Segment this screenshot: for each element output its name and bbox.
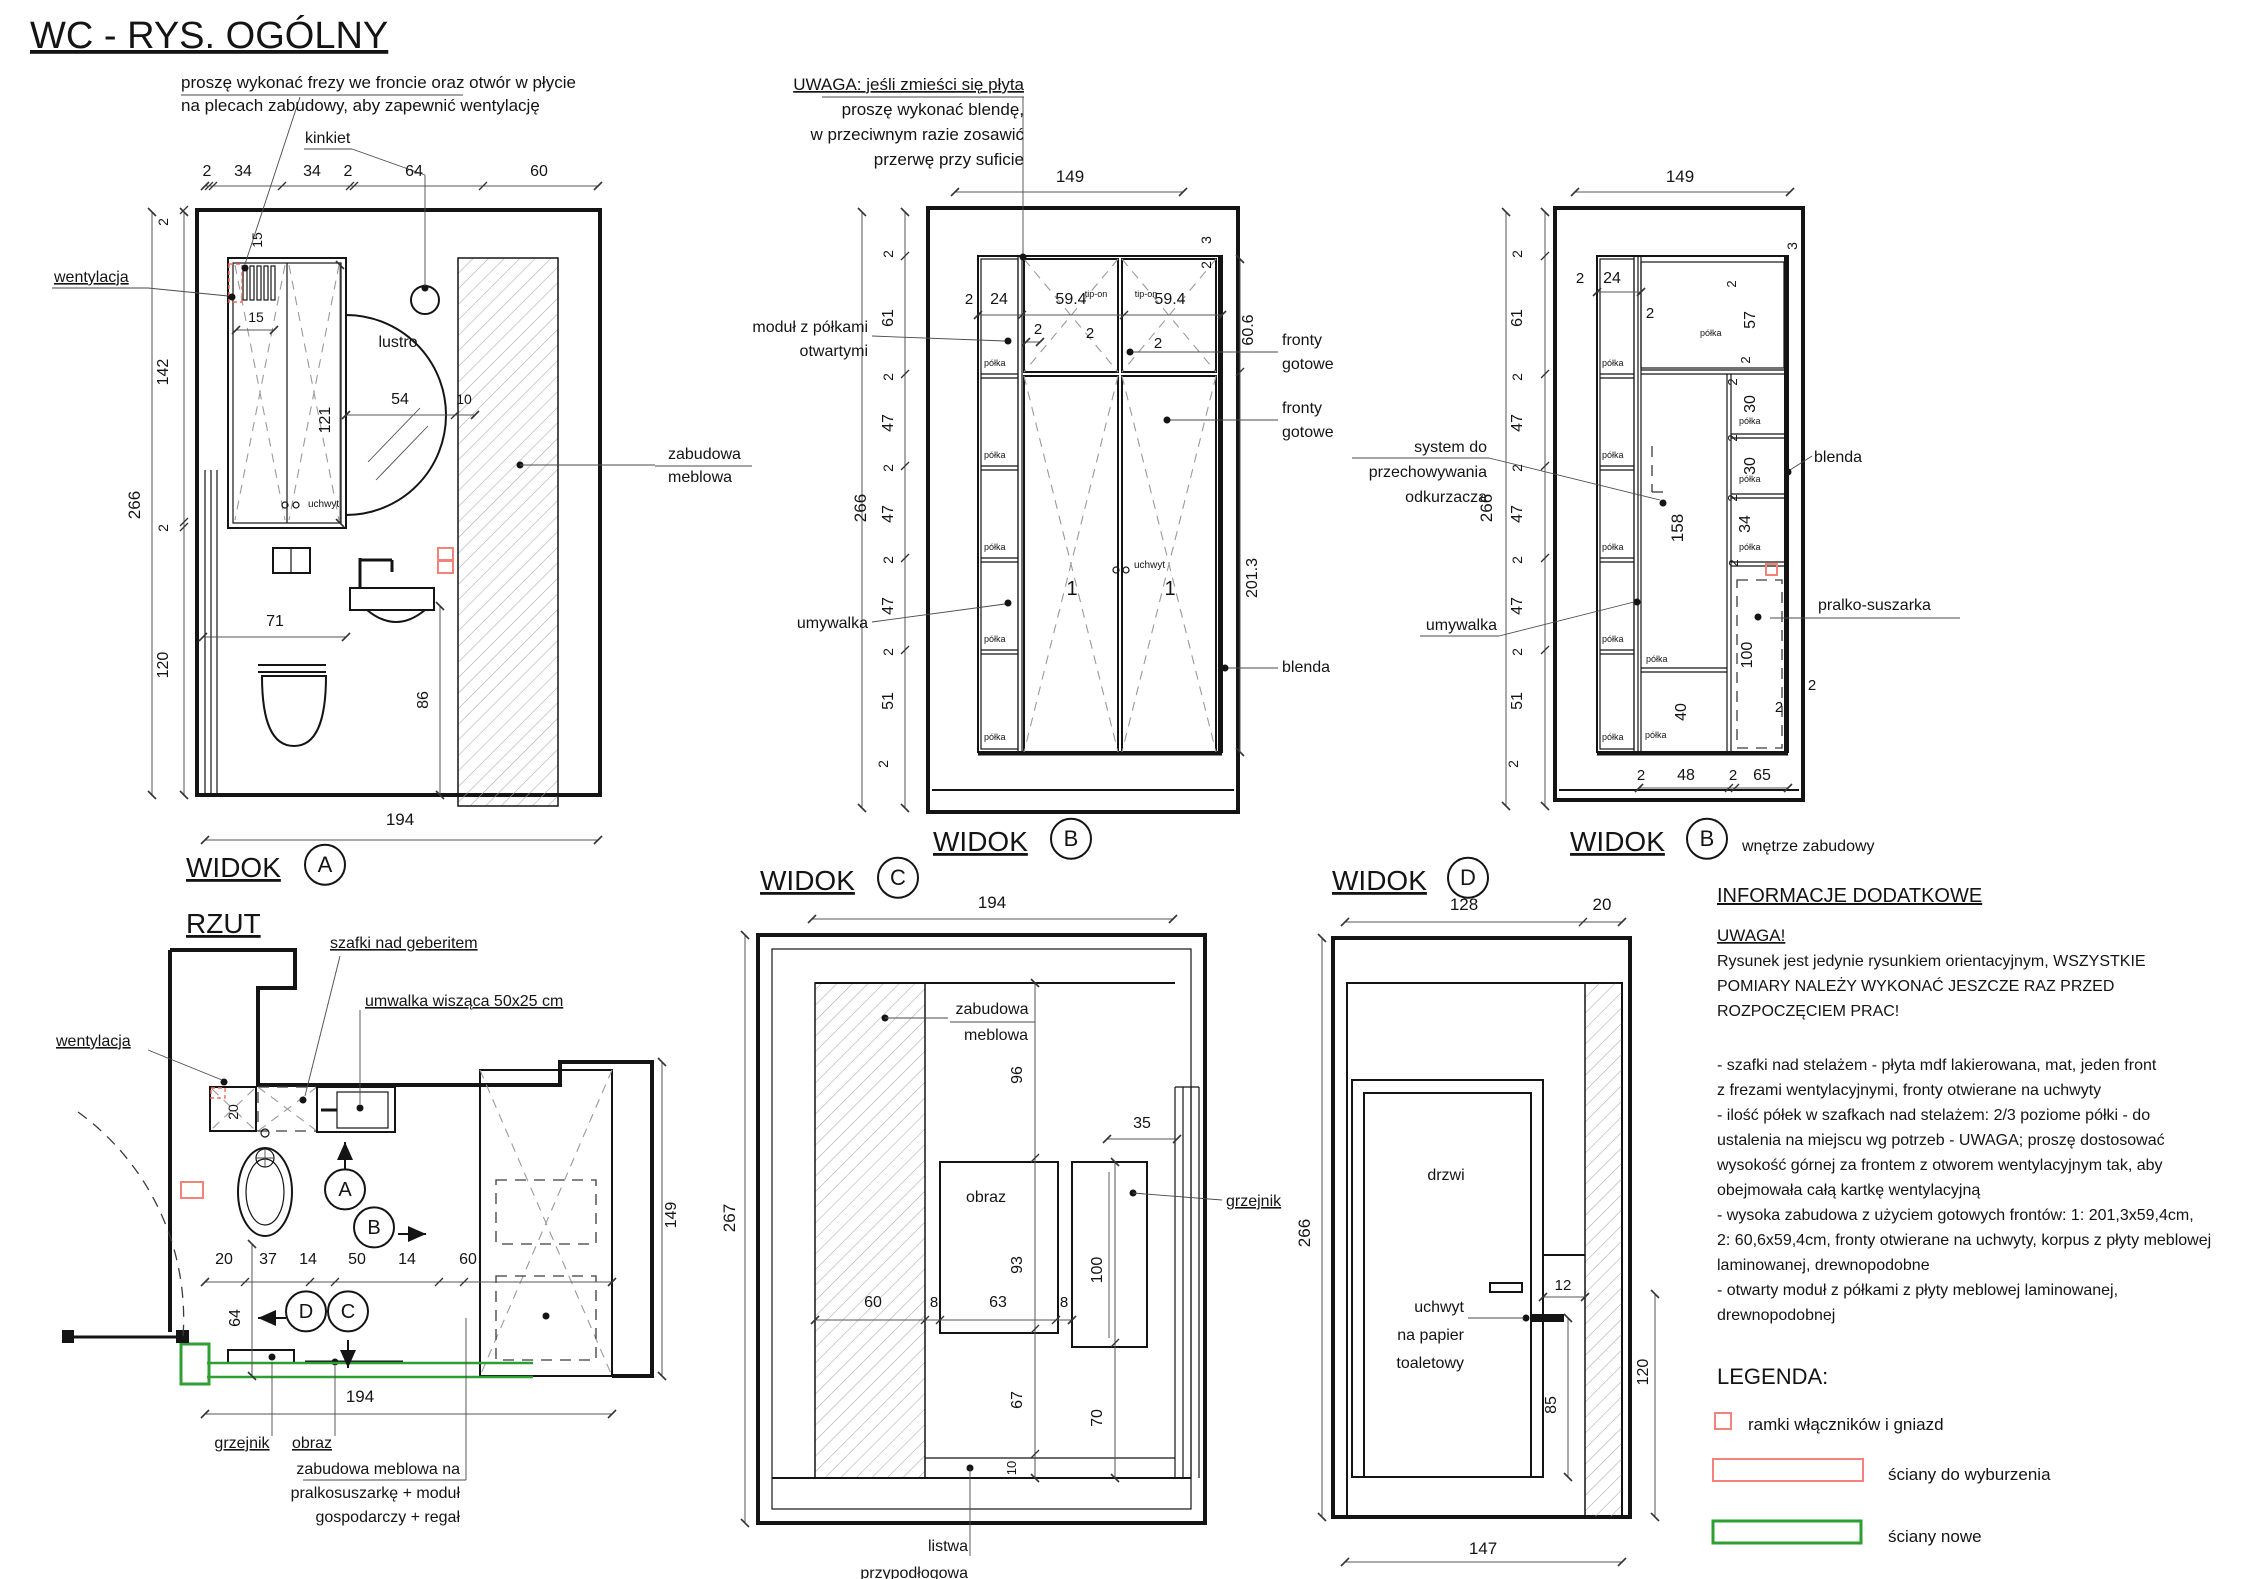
dim-label: 60: [459, 1251, 477, 1268]
dim-label: 2: [1775, 699, 1783, 716]
dim-label: 93: [1009, 1256, 1026, 1274]
label-drzwi: drzwi: [1427, 1167, 1464, 1184]
note-frezy: proszę wykonać frezy we froncie oraz otw…: [181, 73, 576, 92]
dim-label: 65: [1753, 767, 1771, 784]
dim-label: 10: [456, 391, 472, 407]
dim-label: 20: [215, 1251, 233, 1268]
dim-label: 2: [880, 373, 896, 381]
dim-label: 2: [875, 760, 891, 768]
legend-sciany-do-wyburzenia: ściany do wyburzenia: [1888, 1465, 2051, 1484]
label-zabudowa-meblowa: zabudowa: [956, 1001, 1029, 1018]
note-frezy: na plecach zabudowy, aby zapewnić wentyl…: [181, 96, 540, 115]
leaders: [822, 97, 1278, 672]
dim-label: półka: [1602, 542, 1624, 552]
dim-label: 15: [249, 232, 265, 248]
label-obraz: obraz: [292, 1435, 332, 1452]
dim-label: 34: [1737, 515, 1754, 533]
blenda-strip: [1218, 256, 1222, 752]
dim-label: 2: [203, 163, 212, 180]
dim-label: 2: [1576, 270, 1584, 287]
label-system-odkurzacza: system do: [1414, 439, 1487, 456]
dim-label: 194: [346, 1387, 374, 1406]
dim-label: laminowanej, drewnopodobne: [1717, 1257, 1930, 1274]
dim-label: półka: [1645, 730, 1667, 740]
label-kinkiet: kinkiet: [305, 130, 351, 147]
widok-a-marker: A: [318, 852, 333, 877]
geberit-plate: [273, 548, 310, 573]
dim-label: 2: [155, 524, 171, 532]
dim-label: 2: [1086, 325, 1094, 342]
dim-label: 96: [1009, 1066, 1026, 1084]
dim-label: 48: [1677, 767, 1695, 784]
dim-label: 2: [1729, 767, 1737, 784]
dim-label: 24: [1603, 270, 1621, 287]
drawing-sheet: WC - RYS. OGÓLNY: [0, 0, 2247, 1579]
door-handle: [1490, 1283, 1522, 1292]
dim-label: półka: [984, 634, 1006, 644]
dim-label: tip-on: [1135, 289, 1158, 299]
dim-label: półka: [984, 358, 1006, 368]
dim-label: 149: [1666, 167, 1694, 186]
dim-label: drewnopodobnej: [1717, 1307, 1835, 1324]
dim-label: półka: [1602, 450, 1624, 460]
dim-label: 37: [259, 1251, 277, 1268]
label-blenda: blenda: [1814, 449, 1862, 466]
label-pralko-suszarka: pralko-suszarka: [1818, 597, 1931, 614]
label-zabudowa-pralko: gospodarczy + regał: [315, 1509, 460, 1526]
tall-cabinet: [978, 256, 1222, 754]
dim-label: ustalenia na miejscu wg potrzeb - UWAGA;…: [1717, 1132, 2165, 1149]
dimensions: [862, 192, 1244, 808]
dim-label: 2: [880, 250, 896, 258]
dim-label: 2: [1725, 494, 1740, 501]
dim-label: 2: [1509, 556, 1525, 564]
radiator-plan: [228, 1350, 294, 1363]
dim-label: 59.4: [1055, 291, 1086, 308]
dim-label: tip-on: [1085, 289, 1108, 299]
legend-swatch-ramki: [1715, 1413, 1731, 1429]
label-modul-z-polkami: otwartymi: [800, 343, 868, 360]
widok-b2-subtitle: wnętrze zabudowy: [1741, 838, 1875, 855]
dimensions: [205, 1062, 662, 1414]
label-system-odkurzacza: przechowywania: [1369, 464, 1487, 481]
dim-label: 266: [125, 491, 144, 519]
dim-label: 57: [1742, 311, 1759, 329]
dim-label: 47: [1509, 414, 1526, 432]
dim-label: 60: [864, 1294, 882, 1311]
dim-label: 2: [1637, 767, 1645, 784]
label-listwa: listwa: [928, 1538, 968, 1555]
dim-label: ROZPOCZĘCIEM PRAC!: [1717, 1003, 1899, 1020]
open-shelves-left: [1600, 374, 1634, 654]
radiator-pipes-strip: [1175, 1087, 1199, 1478]
dim-label: 3: [1784, 242, 1800, 250]
dim-label: 20: [1593, 895, 1612, 914]
labels-widok_a: proszę wykonać frezy we froncie oraz otw…: [53, 73, 741, 939]
label-modul-z-polkami: moduł z półkami: [752, 319, 868, 336]
label-wentylacja: wentylacja: [53, 269, 129, 286]
dim-label: półka: [984, 542, 1006, 552]
legend-swatch-sciany-nowe: [1713, 1521, 1861, 1543]
widok-b-marker: B: [1064, 826, 1079, 851]
label-blenda: blenda: [1282, 659, 1330, 676]
dim-label: 1: [1164, 578, 1175, 600]
view-widok-a: [52, 95, 752, 840]
dim-label: półka: [1739, 416, 1761, 426]
dim-label: 194: [978, 893, 1006, 912]
toilet-elevation: [258, 665, 326, 746]
note-blenda: proszę wykonać blendę,: [842, 100, 1024, 119]
label-zabudowa-meblowa: zabudowa: [668, 446, 741, 463]
dim-label: półka: [1602, 358, 1624, 368]
label-obraz: obraz: [966, 1189, 1006, 1206]
widok-a-heading: WIDOK: [186, 852, 281, 883]
sink-plan: [317, 1087, 395, 1132]
dim-label: 24: [990, 291, 1008, 308]
dim-label: 2: [1724, 280, 1739, 287]
dim-label: półka: [1700, 328, 1722, 338]
dim-label: 8: [930, 1294, 938, 1311]
dim-label: 2: [1509, 373, 1525, 381]
dim-label: 201.3: [1244, 558, 1261, 598]
dim-label: 2: [155, 218, 171, 226]
dim-label: 158: [1668, 514, 1687, 542]
dim-label: półka: [1602, 732, 1624, 742]
leaders: [148, 956, 466, 1480]
dim-label: 63: [989, 1294, 1007, 1311]
widok-b2-marker: B: [1700, 826, 1715, 851]
dim-label: półka: [1646, 654, 1668, 664]
dim-label: 2: [1034, 321, 1042, 338]
sink-elevation: [350, 558, 434, 622]
dim-label: 47: [1509, 597, 1526, 615]
dim-label: 10: [1004, 1461, 1019, 1475]
dim-label: 121: [317, 407, 334, 434]
dim-label: 14: [299, 1251, 317, 1268]
dim-label: 61: [880, 309, 897, 327]
label-zabudowa-meblowa: meblowa: [668, 469, 732, 486]
zabudowa-plan: [480, 1070, 612, 1376]
dim-label: 120: [155, 652, 172, 679]
label-grzejnik: grzejnik: [214, 1435, 270, 1452]
dim-label: 54: [391, 391, 409, 408]
cabinet-interior: [1597, 256, 1788, 754]
dim-label: - szafki nad stelażem - płyta mdf lakier…: [1717, 1057, 2157, 1074]
marker-b: B: [367, 1217, 380, 1239]
dim-label: 40: [1673, 703, 1690, 721]
label-uchwyt-na-papier: uchwyt: [1414, 1299, 1464, 1316]
labels-widok_b: UWAGA: jeśli zmieści się płytaproszę wyk…: [752, 75, 1333, 859]
widok-d-heading: WIDOK: [1332, 865, 1427, 896]
note-blenda: w przeciwnym razie zosawić: [810, 125, 1025, 144]
rzut-heading: RZUT: [186, 908, 261, 939]
dim-label: 2: [1509, 648, 1525, 656]
dim-label: 71: [266, 613, 284, 630]
dim-label: półka: [984, 450, 1006, 460]
dim-label: 51: [1509, 692, 1526, 710]
dim-label: 147: [1469, 1539, 1497, 1558]
dim-label: półka: [1739, 542, 1761, 552]
label-umywalka-wiszaca: umwalka wisząca 50x25 cm: [365, 993, 563, 1010]
dim-label: 2: [1725, 378, 1740, 385]
radiator-grzejnik: [1072, 1162, 1147, 1347]
dim-label: 266: [1295, 1219, 1314, 1247]
dim-label: 2: [1509, 250, 1525, 258]
dim-label: 2: [1808, 677, 1816, 694]
dim-label: 70: [1089, 1409, 1106, 1427]
dim-label: Rysunek jest jedynie rysunkiem orientacy…: [1717, 953, 2146, 970]
dim-label: 14: [398, 1251, 416, 1268]
label-fronty-gotowe: fronty: [1282, 400, 1322, 417]
dim-label: 120: [1635, 1359, 1652, 1386]
dim-label: - ilość półek w szafkach nad stelażem: 2…: [1717, 1107, 2150, 1124]
dim-label: 2: [965, 291, 973, 308]
dim-label: 64: [227, 1309, 244, 1327]
dim-label: 3: [1198, 236, 1214, 244]
dim-label: obejmowała całą kartkę wentylacyjną: [1717, 1182, 1980, 1199]
dim-label: półka: [1602, 634, 1624, 644]
toilet-plan: [238, 1129, 292, 1236]
socket-frames-red: [438, 548, 453, 573]
dim-label: 64: [405, 163, 423, 180]
dim-label: wysokość górnej za frontem z otworem wen…: [1716, 1157, 2163, 1174]
blenda-strip: [1784, 256, 1788, 752]
cabinet-over-geberit: [228, 258, 346, 528]
dim-label: 34: [303, 163, 321, 180]
widok-c-heading: WIDOK: [760, 865, 855, 896]
door-drzwi: [1352, 1080, 1585, 1477]
dim-label: 2: [1646, 305, 1654, 322]
dim-label: z frezami wentylacyjnymi, fronty otwiera…: [1717, 1082, 2101, 1099]
label-umywalka: umywalka: [1426, 617, 1497, 634]
dim-label: 60.6: [1240, 314, 1257, 345]
dim-label: 47: [1509, 505, 1526, 523]
legend-swatch-sciany-wyburzenia: [1713, 1459, 1863, 1481]
wall-to-demolish-red: [181, 1182, 203, 1198]
dim-label: - wysoka zabudowa z użyciem gotowych fro…: [1717, 1207, 2194, 1224]
dim-label: 8: [1060, 1294, 1068, 1311]
dim-label: półka: [1739, 474, 1761, 484]
zabudowa-meblowa-hatch: [458, 258, 558, 806]
dim-label: uchwyt: [1134, 560, 1165, 571]
widok-c-marker: C: [890, 865, 906, 890]
dim-label: - otwarty moduł z półkami z płyty meblow…: [1717, 1282, 2118, 1299]
page-title: WC - RYS. OGÓLNY: [30, 14, 388, 57]
dim-label: 20: [225, 1104, 241, 1120]
label-fronty-gotowe: gotowe: [1282, 356, 1334, 373]
leaders: [52, 95, 752, 469]
dim-label: 100: [1089, 1257, 1106, 1284]
dim-label: 2: [1509, 464, 1525, 472]
dim-label: 30: [1742, 395, 1759, 413]
dimensions: [1506, 192, 1790, 806]
info-heading: INFORMACJE DODATKOWE: [1717, 885, 1982, 907]
label-uchwyt-na-papier: toaletowy: [1396, 1355, 1464, 1372]
dim-label: 15: [248, 309, 264, 325]
dim-label: 59.4: [1154, 291, 1185, 308]
label-umywalka: umywalka: [797, 615, 868, 632]
note-blenda: UWAGA: jeśli zmieści się płyta: [793, 75, 1024, 94]
dim-label: 2: [1725, 434, 1740, 441]
wall-hatch: [1585, 983, 1622, 1517]
dim-label: 2: [880, 556, 896, 564]
dim-label: 60: [530, 163, 548, 180]
dim-label: 30: [1742, 457, 1759, 475]
dim-label: 2: 60,6x59,4cm, fronty otwierane na uchw…: [1717, 1232, 2211, 1249]
marker-a: A: [338, 1179, 352, 1201]
label-grzejnik: grzejnik: [1226, 1193, 1282, 1210]
dim-label: 34: [234, 163, 252, 180]
dim-label: 2: [1726, 559, 1741, 566]
dim-label: 149: [663, 1202, 680, 1229]
dim-label: 61: [1509, 309, 1526, 327]
wall-layer-lines: [205, 470, 217, 795]
dim-label: 149: [1056, 167, 1084, 186]
dim-label: 51: [880, 692, 897, 710]
labels-rzut: szafki nad geberitemumwalka wisząca 50x2…: [55, 935, 680, 1526]
dim-label: 47: [880, 414, 897, 432]
label-fronty-gotowe: fronty: [1282, 332, 1322, 349]
label-zabudowa-pralko: pralkosuszarkę + moduł: [291, 1485, 461, 1502]
dim-label: 35: [1133, 1115, 1151, 1132]
view-widok-d: [1322, 918, 1655, 1562]
toilet-paper-holder: [1468, 1314, 1564, 1322]
label-zabudowa-meblowa: meblowa: [964, 1027, 1028, 1044]
leaders: [882, 1015, 1223, 1557]
info-uwaga: UWAGA!: [1717, 926, 1785, 945]
label-system-odkurzacza: odkurzacza: [1405, 489, 1487, 506]
legend-ramki-wlacznikow: ramki włączników i gniazd: [1748, 1415, 1944, 1434]
label-uchwyt-na-papier: na papier: [1397, 1327, 1464, 1344]
label-wentylacja: wentylacja: [55, 1033, 131, 1050]
dim-label: 2: [880, 648, 896, 656]
wc-technical-drawing: WC - RYS. OGÓLNY: [0, 0, 2247, 1579]
widok-b-heading: WIDOK: [933, 826, 1028, 857]
label-fronty-gotowe: gotowe: [1282, 424, 1334, 441]
labels-widok_c: 194267zabudowameblowa9635obraz93100grzej…: [720, 858, 1282, 1579]
dim-label: 266: [851, 494, 870, 522]
zabudowa-meblowa-hatch: [815, 983, 925, 1478]
label-lustro: lustro: [378, 334, 417, 351]
note-blenda: przerwę przy suficie: [874, 150, 1024, 169]
labels-info: INFORMACJE DODATKOWEUWAGA!Rysunek jest j…: [1716, 885, 2211, 1389]
dim-label: 47: [880, 505, 897, 523]
dim-label: 2: [344, 163, 353, 180]
label-zabudowa-pralko: zabudowa meblowa na: [296, 1461, 460, 1478]
dim-label: 267: [720, 1204, 739, 1232]
open-shelves: [981, 374, 1018, 654]
marker-d: D: [299, 1301, 313, 1323]
dim-label: 67: [1009, 1391, 1026, 1409]
dim-label: 2: [1505, 760, 1521, 768]
dim-label: 100: [1739, 642, 1756, 669]
dim-label: 50: [348, 1251, 366, 1268]
dim-label: 2: [1738, 356, 1753, 363]
dim-label: 142: [155, 359, 172, 386]
dim-label: 2: [1154, 335, 1162, 352]
dim-label: 1: [1066, 578, 1077, 600]
dim-label: 86: [415, 691, 432, 709]
label-szafki-nad-geberitem: szafki nad geberitem: [330, 935, 478, 952]
dim-label: 12: [1555, 1277, 1572, 1294]
dim-label: 194: [386, 810, 414, 829]
legend-sciany-nowe: ściany nowe: [1888, 1527, 1982, 1546]
dim-label: 2: [1198, 261, 1214, 269]
dim-label: 85: [1543, 1396, 1560, 1414]
dim-label: 2: [880, 464, 896, 472]
dim-label: półka: [984, 732, 1006, 742]
widok-d-marker: D: [1460, 865, 1476, 890]
dim-label: POMIARY NALEŻY WYKONAĆ JESZCZE RAZ PRZED: [1717, 976, 2114, 995]
label-listwa: przypodłogowa: [860, 1565, 968, 1579]
geberit-cabinet-plan: [258, 1087, 317, 1131]
legenda-heading: LEGENDA:: [1717, 1364, 1828, 1389]
marker-c: C: [341, 1301, 355, 1323]
widok-b2-heading: WIDOK: [1570, 826, 1665, 857]
label-uchwyt: uchwyt: [308, 499, 339, 510]
dim-label: 47: [880, 597, 897, 615]
